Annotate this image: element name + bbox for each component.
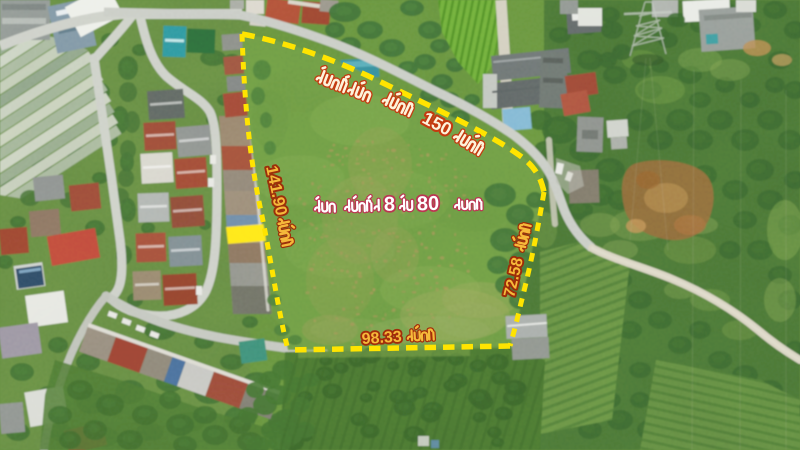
- svg-text:8: 8: [384, 194, 396, 216]
- svg-text:80: 80: [417, 193, 440, 215]
- svg-text:98.33: 98.33: [361, 329, 402, 348]
